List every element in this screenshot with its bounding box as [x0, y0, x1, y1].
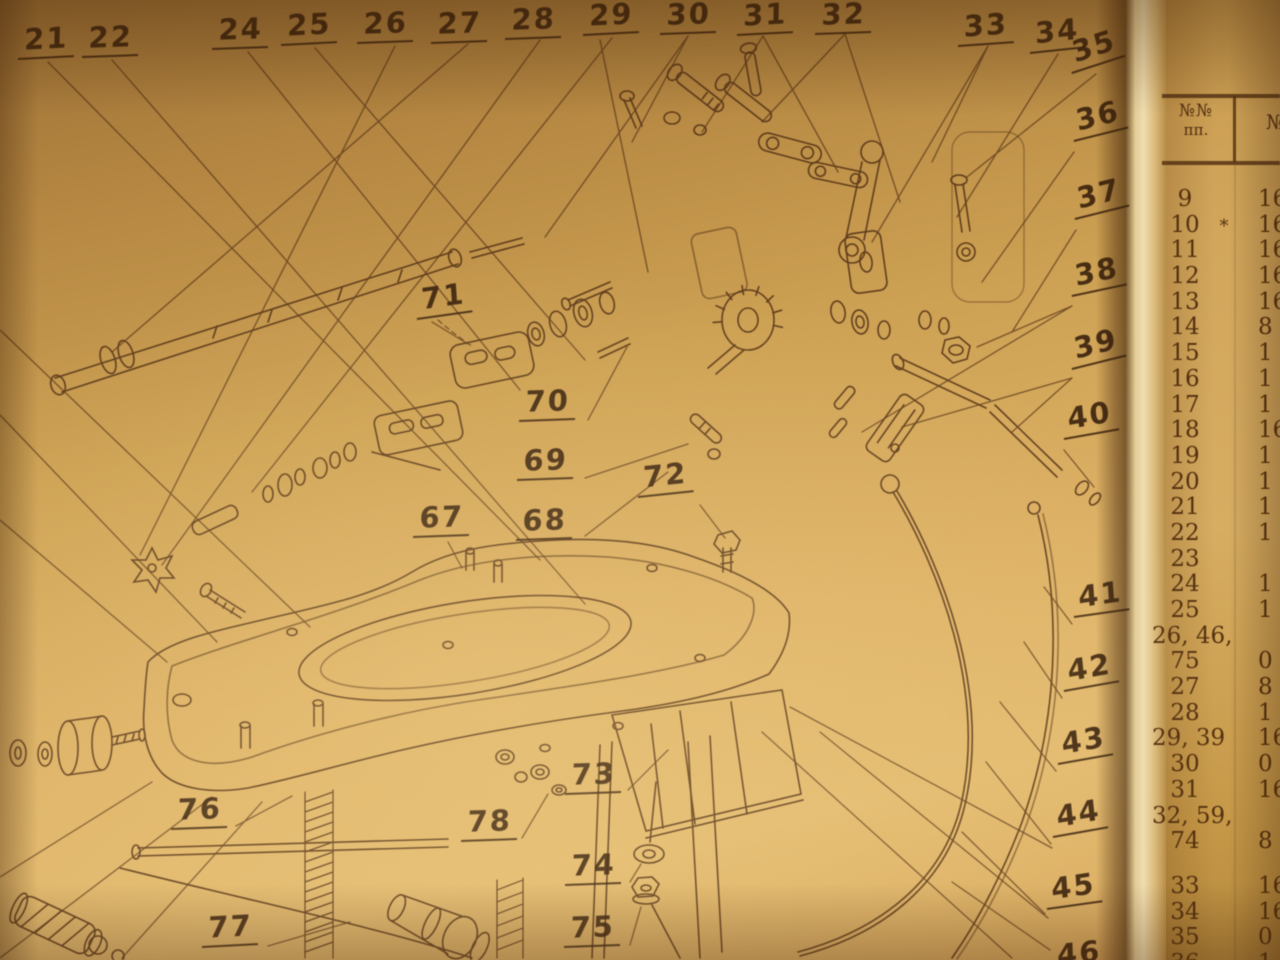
- row-value-fragment: 8: [1258, 674, 1280, 700]
- plug-part: [381, 884, 496, 960]
- table-header-border: [1162, 161, 1280, 165]
- damper-part: [10, 716, 145, 775]
- part-callout-24: 24: [212, 14, 269, 50]
- row-number-cell: 24: [1152, 571, 1218, 597]
- part-callout-33: 33: [958, 9, 1014, 47]
- row-number-cell: 14: [1152, 314, 1218, 340]
- row-number-cell: 13: [1152, 289, 1218, 315]
- row-number-cell: 21: [1152, 494, 1218, 520]
- table-row: 1316: [1152, 289, 1280, 315]
- part-callout-72: 72: [637, 458, 694, 498]
- part-callout-30: 30: [660, 0, 717, 35]
- table-row: 191: [1152, 443, 1280, 469]
- row-number-cell: 11: [1152, 237, 1218, 263]
- row-number-cell: 16: [1152, 366, 1218, 392]
- row-number-cell: 15: [1152, 340, 1218, 366]
- corner-cylinder: [7, 891, 124, 960]
- table-header-line1: №№: [1160, 101, 1232, 121]
- row-number-cell: 9: [1152, 186, 1218, 212]
- row-number-cell: 17: [1152, 392, 1218, 418]
- row-value-fragment: 16: [1258, 777, 1280, 803]
- table-row: 151: [1152, 340, 1280, 366]
- part-callout-76: 76: [171, 794, 228, 830]
- row-value-fragment: 16: [1258, 873, 1280, 899]
- part-callout-22: 22: [82, 22, 139, 58]
- photographed-book-page: 2122242526272829303132333435363738394041…: [0, 0, 1280, 960]
- right-washers: [829, 300, 970, 363]
- row-number-cell: 34: [1152, 899, 1218, 925]
- table-header-line2: пп.: [1160, 121, 1232, 139]
- row-value-fragment: 1: [1258, 494, 1280, 520]
- table-row: 26, 46,: [1152, 623, 1280, 649]
- table-row: 748: [1152, 828, 1280, 854]
- table-row: 361: [1152, 950, 1280, 960]
- row-value-fragment: 1: [1258, 392, 1280, 418]
- row-value-fragment: 1: [1258, 469, 1280, 495]
- row-value-fragment: 16: [1258, 899, 1280, 925]
- table-row: 278: [1152, 674, 1280, 700]
- row-number-cell: 30: [1152, 751, 1218, 777]
- table-row: 211: [1152, 494, 1280, 520]
- row-number-cell: 36: [1152, 950, 1218, 960]
- table-top-border: [1162, 94, 1280, 98]
- row-number-cell: 12: [1152, 263, 1218, 289]
- row-number-cell: 33: [1152, 873, 1218, 899]
- leader-lines: [0, 34, 1096, 958]
- table-row: 221: [1152, 520, 1280, 546]
- table-row: 201: [1152, 469, 1280, 495]
- table-row: 281: [1152, 700, 1280, 726]
- table-row: 3316: [1152, 873, 1280, 899]
- row-value-fragment: 1: [1258, 520, 1280, 546]
- grommets-78: [496, 750, 566, 795]
- part-callout-75: 75: [564, 912, 621, 948]
- part-callout-26: 26: [357, 8, 414, 44]
- row-value-fragment: 16: [1258, 212, 1280, 238]
- row-value-fragment: 1: [1258, 950, 1280, 960]
- part-callout-68: 68: [516, 505, 573, 541]
- table-header-cell: №№ пп.: [1160, 101, 1232, 139]
- row-number-cell: 20: [1152, 469, 1218, 495]
- row-number-cell: 18: [1152, 417, 1218, 443]
- row-value-fragment: 1: [1258, 340, 1280, 366]
- part-callout-25: 25: [281, 9, 338, 46]
- tie-rod: [120, 839, 472, 958]
- row-value-fragment: 1: [1258, 571, 1280, 597]
- table-row: 29, 3916: [1152, 725, 1280, 751]
- table-row: 350: [1152, 924, 1280, 950]
- row-number-cell: 22: [1152, 520, 1218, 546]
- row-value-fragment: 16: [1258, 417, 1280, 443]
- row-value-fragment: 1: [1258, 700, 1280, 726]
- table-row: 1116: [1152, 237, 1280, 263]
- part-callout-29: 29: [583, 0, 640, 36]
- row-value-fragment: 0: [1258, 648, 1280, 674]
- part-callout-78: 78: [461, 806, 518, 842]
- part-callout-31: 31: [737, 0, 794, 36]
- row-value-fragment: 16: [1258, 289, 1280, 315]
- part-callout-69: 69: [517, 445, 574, 481]
- row-value-fragment: 1: [1258, 443, 1280, 469]
- part-callout-77: 77: [202, 911, 259, 948]
- parts-table-rows: 91610*1611161216131614815116117118161912…: [1152, 186, 1280, 960]
- row-number-cell: 32, 59,: [1152, 803, 1218, 829]
- linkage-lever: [690, 132, 1024, 302]
- row-value-fragment: 1: [1258, 366, 1280, 392]
- bevel-gear: [688, 286, 782, 459]
- row-number-cell: 28: [1152, 700, 1218, 726]
- part-callout-67: 67: [413, 502, 470, 538]
- row-value-fragment: 8: [1258, 828, 1280, 854]
- table-row: 916: [1152, 186, 1280, 212]
- table-column-divider: [1233, 96, 1236, 162]
- row-number-cell: 10: [1152, 212, 1218, 238]
- table-row: 241: [1152, 571, 1280, 597]
- table-row: 171: [1152, 392, 1280, 418]
- row-number-cell: 75: [1152, 648, 1218, 674]
- row-number-cell: 19: [1152, 443, 1218, 469]
- row-value-fragment: 16: [1258, 186, 1280, 212]
- table-row: 251: [1152, 597, 1280, 623]
- row-value-fragment: 16: [1258, 725, 1280, 751]
- table-row: 148: [1152, 314, 1280, 340]
- row-number-cell: 25: [1152, 597, 1218, 623]
- part-callout-74: 74: [565, 850, 622, 886]
- part-callout-73: 73: [565, 759, 622, 795]
- table-row: 10*16: [1152, 212, 1280, 238]
- table-row: 23: [1152, 546, 1280, 572]
- starter-rods: [798, 475, 1058, 959]
- table-row: 750: [1152, 648, 1280, 674]
- part-callout-27: 27: [431, 8, 488, 44]
- shift-rod-clevis: [828, 353, 1103, 507]
- row-value-fragment: 16: [1258, 263, 1280, 289]
- row-number-cell: 26, 46,: [1152, 623, 1218, 649]
- part-callout-70: 70: [519, 386, 576, 422]
- row-value-fragment: 0: [1258, 751, 1280, 777]
- table-row: 3116: [1152, 777, 1280, 803]
- row-value-fragment: 0: [1258, 924, 1280, 950]
- gearcase-housing: [144, 531, 803, 838]
- table-row: 3416: [1152, 899, 1280, 925]
- page-content: 2122242526272829303132333435363738394041…: [0, 0, 1280, 960]
- table-header-col2-fragment: №: [1266, 110, 1280, 134]
- drive-shaft: [48, 238, 524, 397]
- part-callout-21: 21: [18, 23, 75, 60]
- table-row: 32, 59,: [1152, 803, 1280, 829]
- washer-stack: [525, 282, 630, 358]
- row-value-fragment: 1: [1258, 597, 1280, 623]
- row-asterisk: *: [1218, 216, 1230, 237]
- left-hardware: [132, 443, 356, 618]
- part-callout-32: 32: [815, 0, 872, 35]
- part-callout-46: 46: [1051, 936, 1108, 960]
- row-number-cell: 29, 39: [1152, 725, 1218, 751]
- part-callout-28: 28: [505, 4, 562, 40]
- row-number-cell: 31: [1152, 777, 1218, 803]
- row-number-cell: 23: [1152, 546, 1218, 572]
- table-row: 1816: [1152, 417, 1280, 443]
- row-number-cell: 27: [1152, 674, 1218, 700]
- table-row: 300: [1152, 751, 1280, 777]
- row-number-cell: 35: [1152, 924, 1218, 950]
- clamp-blocks: [372, 330, 536, 470]
- table-row: 1216: [1152, 263, 1280, 289]
- row-value-fragment: 8: [1258, 314, 1280, 340]
- row-value-fragment: 16: [1258, 237, 1280, 263]
- row-number-cell: 74: [1152, 828, 1218, 854]
- table-row: 161: [1152, 366, 1280, 392]
